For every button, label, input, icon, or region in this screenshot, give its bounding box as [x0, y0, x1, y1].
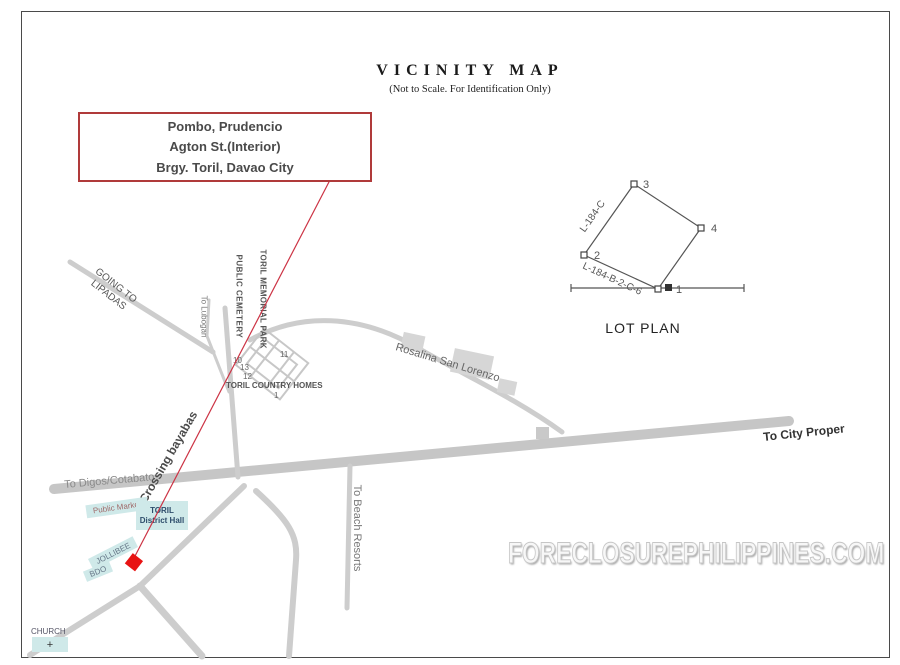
callout-owner: Pombo, Prudencio — [168, 119, 283, 134]
block-number: 13 — [240, 363, 249, 372]
vicinity-map-page: 3 4 2 1 L-184-C L-184-B-2-C-6 VICINITY M… — [0, 0, 900, 665]
church-cross-icon: + — [32, 637, 68, 652]
label-toril-memorial-park: TORIL MEMORIAL PARK — [259, 250, 268, 342]
block-number: 11 — [280, 350, 288, 359]
label-to-lubogan: To Lubogan — [200, 293, 209, 341]
landmark-toril-district-hall: TORIL District Hall — [136, 501, 188, 530]
page-subtitle: (Not to Scale. For Identification Only) — [320, 84, 620, 95]
label-public-cemetery: PUBLIC CEMETERY — [235, 255, 244, 335]
label-toril-country-homes: TORIL COUNTRY HOMES — [226, 381, 312, 390]
property-callout-box: Pombo, Prudencio Agton St.(Interior) Brg… — [78, 112, 372, 182]
landmark-church-label: CHURCH — [31, 627, 73, 636]
label-to-beach-resorts: To Beach Resorts — [351, 484, 363, 572]
callout-barangay: Brgy. Toril, Davao City — [156, 160, 294, 175]
callout-street: Agton St.(Interior) — [169, 139, 280, 154]
block-number: 12 — [243, 372, 252, 381]
watermark: FORECLOSUREPHILIPPINES.COM — [508, 537, 888, 571]
block-number: 1 — [274, 391, 278, 400]
lot-plan-title: LOT PLAN — [593, 320, 693, 336]
page-title: VICINITY MAP — [320, 62, 620, 80]
